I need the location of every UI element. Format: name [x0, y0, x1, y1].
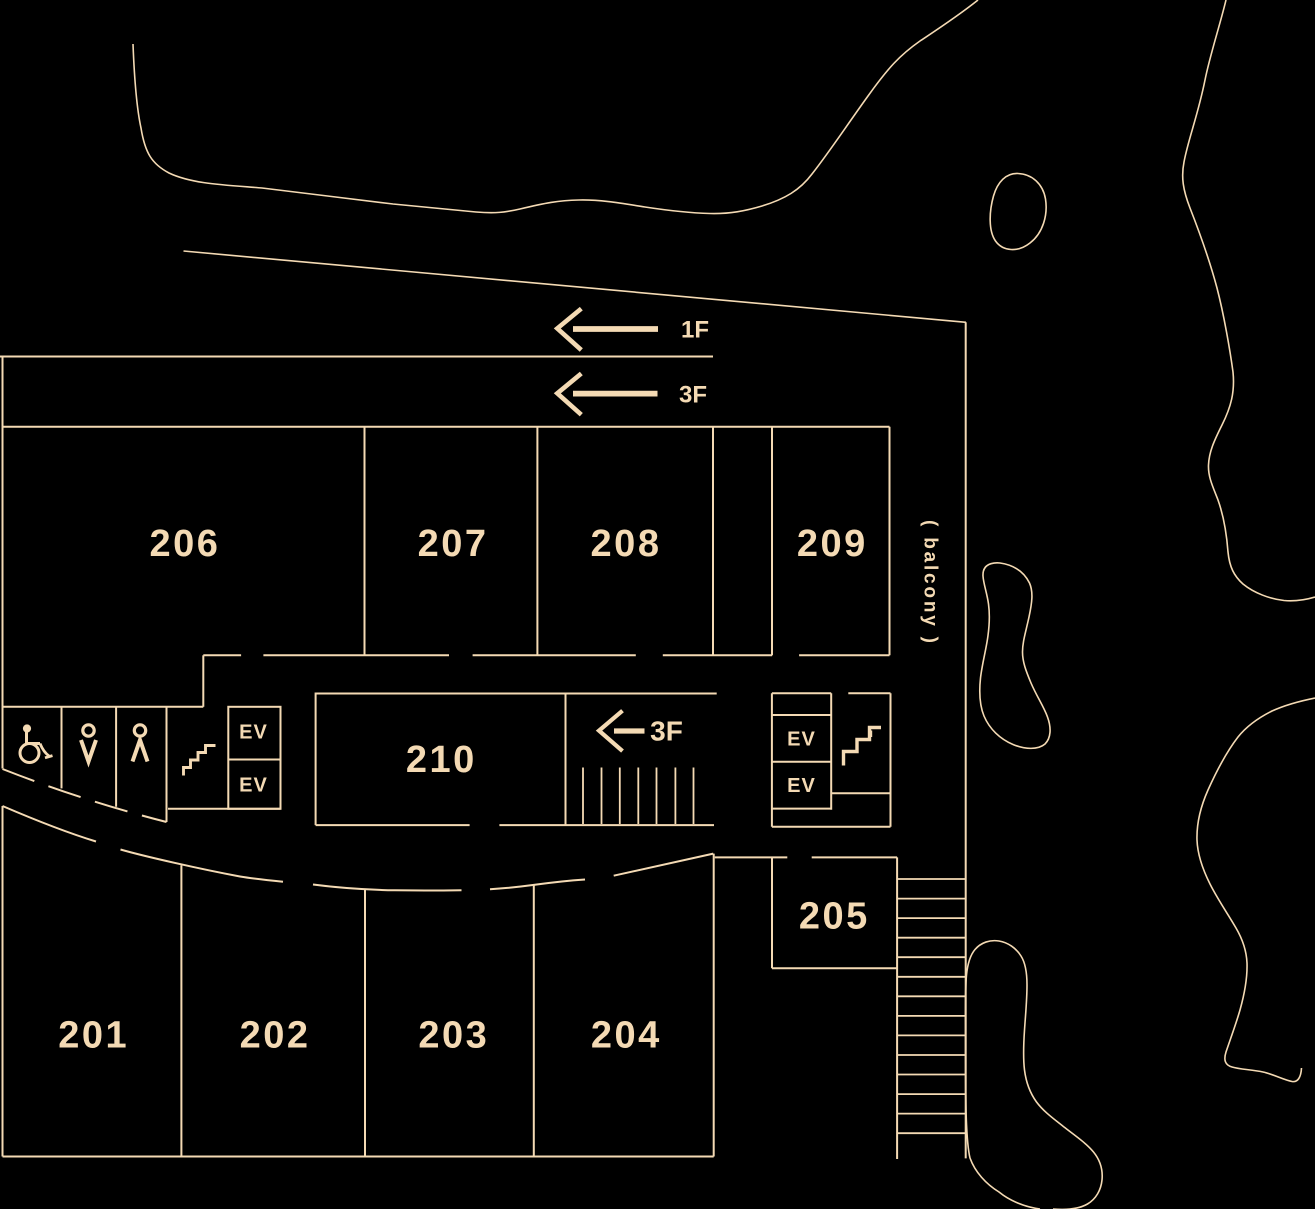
svg-text:201: 201 — [58, 1015, 129, 1057]
svg-text:EV: EV — [787, 728, 816, 750]
svg-text:203: 203 — [418, 1015, 489, 1057]
svg-text:EV: EV — [239, 774, 268, 796]
svg-text:205: 205 — [799, 896, 870, 938]
svg-text:3F: 3F — [650, 716, 683, 747]
svg-text:EV: EV — [787, 775, 816, 797]
svg-text:EV: EV — [239, 721, 268, 743]
svg-text:3F: 3F — [679, 382, 707, 409]
svg-text:207: 207 — [418, 523, 489, 565]
svg-text:208: 208 — [591, 523, 662, 565]
svg-text:206: 206 — [149, 523, 220, 565]
svg-text:( balcony ): ( balcony ) — [920, 520, 941, 646]
svg-text:209: 209 — [797, 523, 868, 565]
svg-text:1F: 1F — [681, 317, 709, 344]
svg-text:202: 202 — [240, 1015, 311, 1057]
svg-text:210: 210 — [406, 739, 477, 781]
svg-text:204: 204 — [591, 1015, 662, 1057]
